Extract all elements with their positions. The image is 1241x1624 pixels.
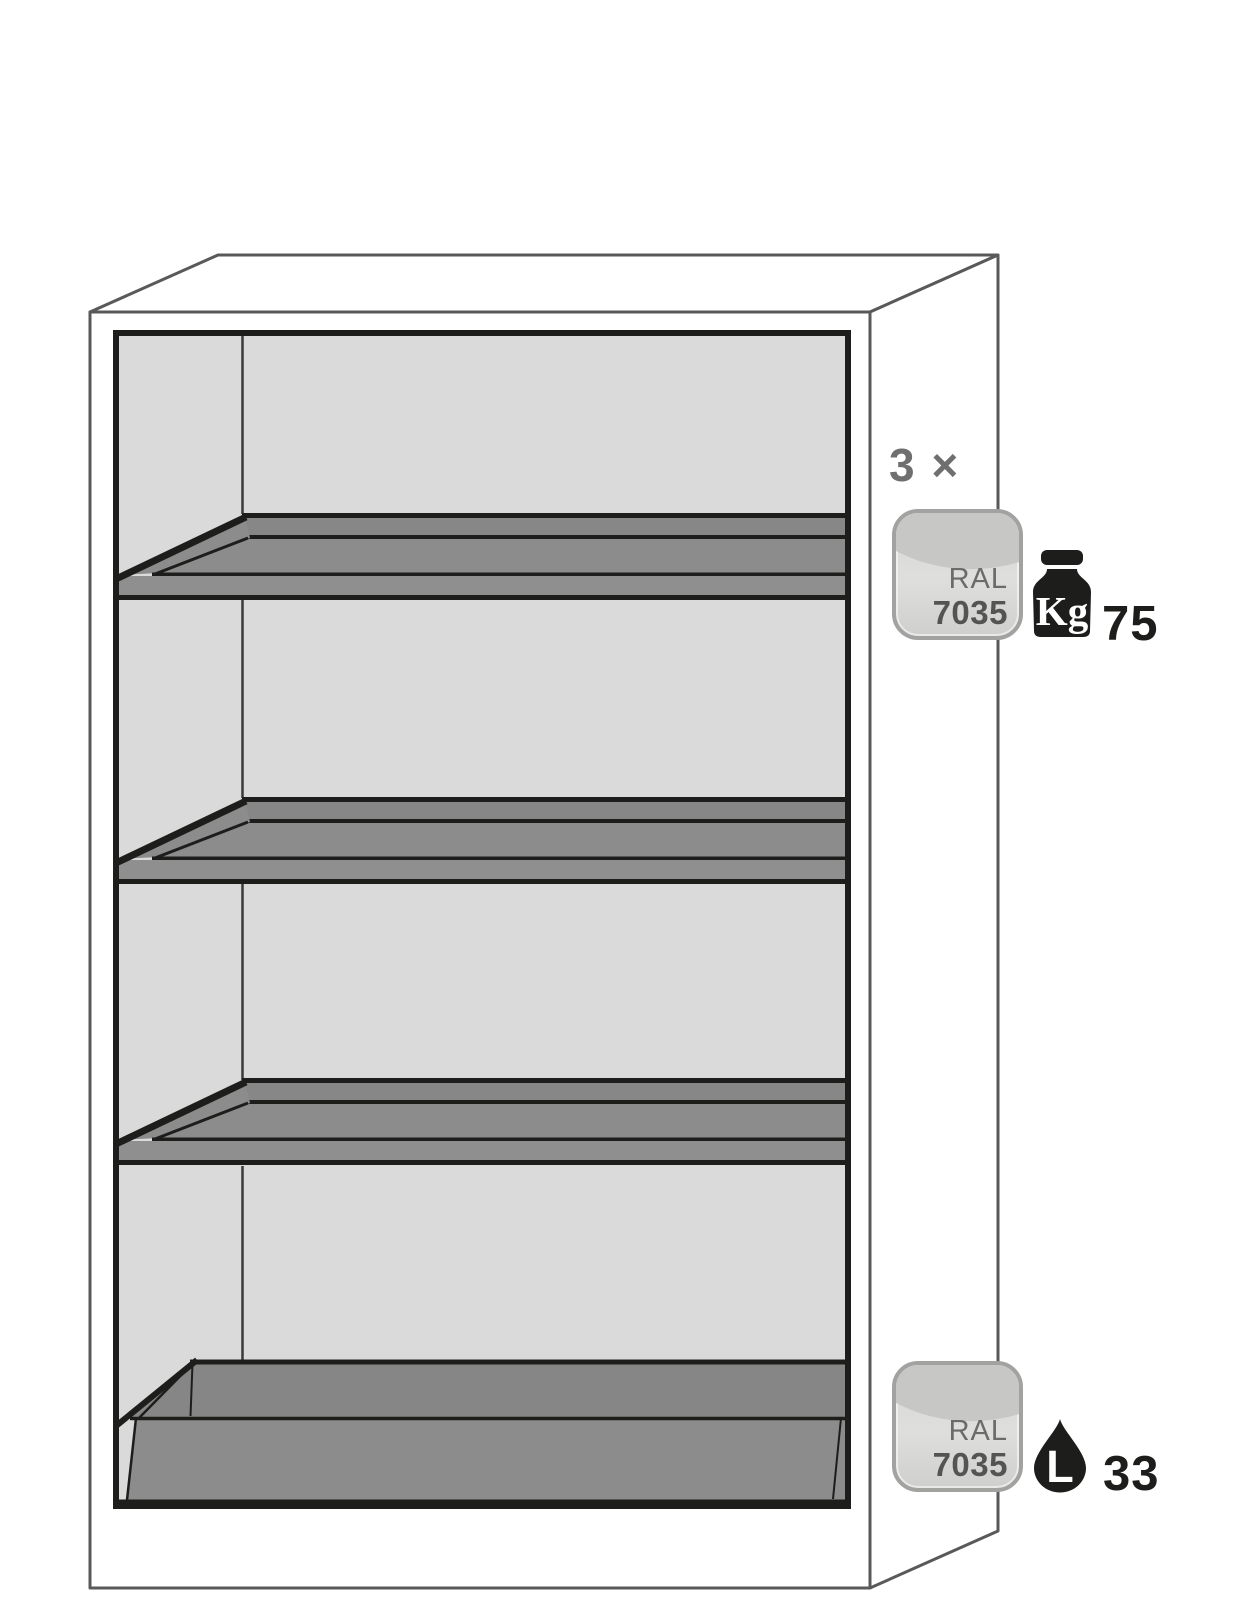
- cabinet-illustration: [0, 0, 1241, 1624]
- shelf-3: [117, 1078, 845, 1165]
- shelf-count-label: 3 ×: [889, 442, 960, 488]
- shelf-load-value: 75: [1102, 600, 1159, 649]
- cabinet-top-face: [90, 255, 998, 312]
- cabinet-diagram: 3 × RAL 7035 Kg 75 RAL 7035 L 33: [0, 0, 1241, 1624]
- weight-icon-label: Kg: [1036, 588, 1089, 634]
- sump-tray: [114, 1360, 851, 1509]
- interior-walls: [119, 336, 845, 1503]
- sump-volume-value: 33: [1103, 1450, 1160, 1499]
- shelf-1: [117, 513, 845, 600]
- ral-label: RAL: [933, 1417, 1008, 1446]
- drop-icon-label: L: [1046, 1441, 1074, 1492]
- ral-badge-shelf: RAL 7035: [892, 509, 1023, 640]
- ral-badge-sump: RAL 7035: [892, 1361, 1023, 1492]
- ral-code: 7035: [933, 1448, 1008, 1481]
- liquid-drop-icon: L: [1034, 1419, 1086, 1493]
- ral-code: 7035: [933, 596, 1008, 629]
- shelf-2: [117, 797, 845, 884]
- cabinet-interior: [113, 330, 851, 1509]
- ral-label: RAL: [933, 565, 1008, 594]
- weight-kg-icon: Kg: [1029, 546, 1095, 642]
